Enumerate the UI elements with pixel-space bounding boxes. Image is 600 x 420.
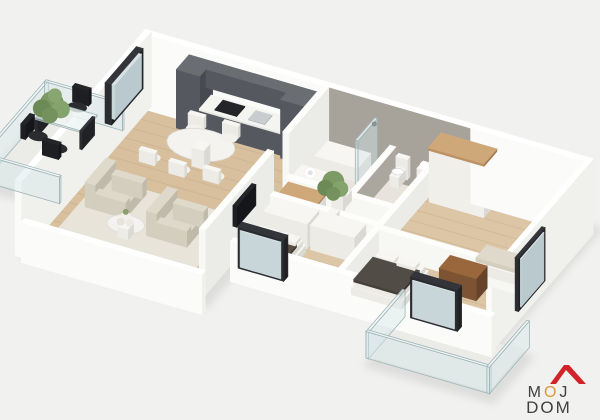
logo-line-dom: DOM (506, 400, 592, 416)
shower-head (372, 121, 377, 126)
apartment-scene (0, 0, 600, 420)
wc-basin-top (420, 161, 428, 169)
logo-roof-icon (546, 361, 586, 385)
vanity-basin (305, 168, 315, 178)
mojdom-logo: MOJ DOM (506, 361, 592, 416)
logo-roof-shape (550, 365, 586, 384)
floorplan-3d-render: MOJ DOM (0, 0, 600, 420)
wc-toilet-seat (392, 168, 404, 175)
